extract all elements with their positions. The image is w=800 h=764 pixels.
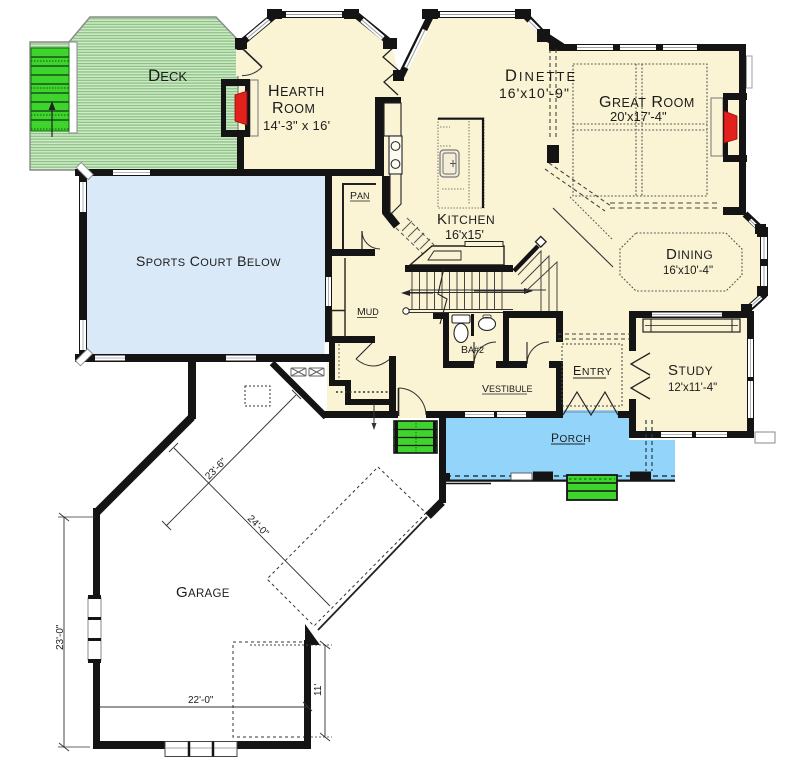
svg-text:DINETTE: DINETTE: [505, 67, 577, 85]
svg-text:MUD: MUD: [357, 306, 379, 318]
svg-text:STUDY: STUDY: [668, 362, 713, 379]
svg-text:14'-3" x 16': 14'-3" x 16': [263, 118, 330, 133]
svg-text:PAN: PAN: [350, 190, 370, 202]
svg-text:22'-0": 22'-0": [188, 695, 214, 706]
svg-text:ENTRY: ENTRY: [573, 364, 612, 378]
svg-text:20'x17'-4": 20'x17'-4": [610, 109, 667, 124]
svg-text:23'-0": 23'-0": [55, 624, 66, 650]
svg-text:HEARTH: HEARTH: [268, 83, 325, 100]
svg-text:16'x10'-9": 16'x10'-9": [499, 85, 570, 101]
svg-text:DINING: DINING: [666, 246, 713, 263]
svg-text:12'x11'-4": 12'x11'-4": [668, 382, 717, 394]
svg-text:16'x10'-4": 16'x10'-4": [663, 265, 713, 277]
svg-text:DECK: DECK: [148, 66, 187, 85]
svg-text:PORCH: PORCH: [551, 431, 591, 445]
svg-text:ROOM: ROOM: [272, 100, 315, 117]
svg-text:BA#2: BA#2: [461, 344, 484, 356]
svg-text:KITCHEN: KITCHEN: [437, 211, 495, 228]
svg-text:VESTIBULE: VESTIBULE: [482, 383, 533, 395]
svg-text:16'x15': 16'x15': [445, 228, 484, 242]
svg-text:11': 11': [313, 684, 324, 696]
